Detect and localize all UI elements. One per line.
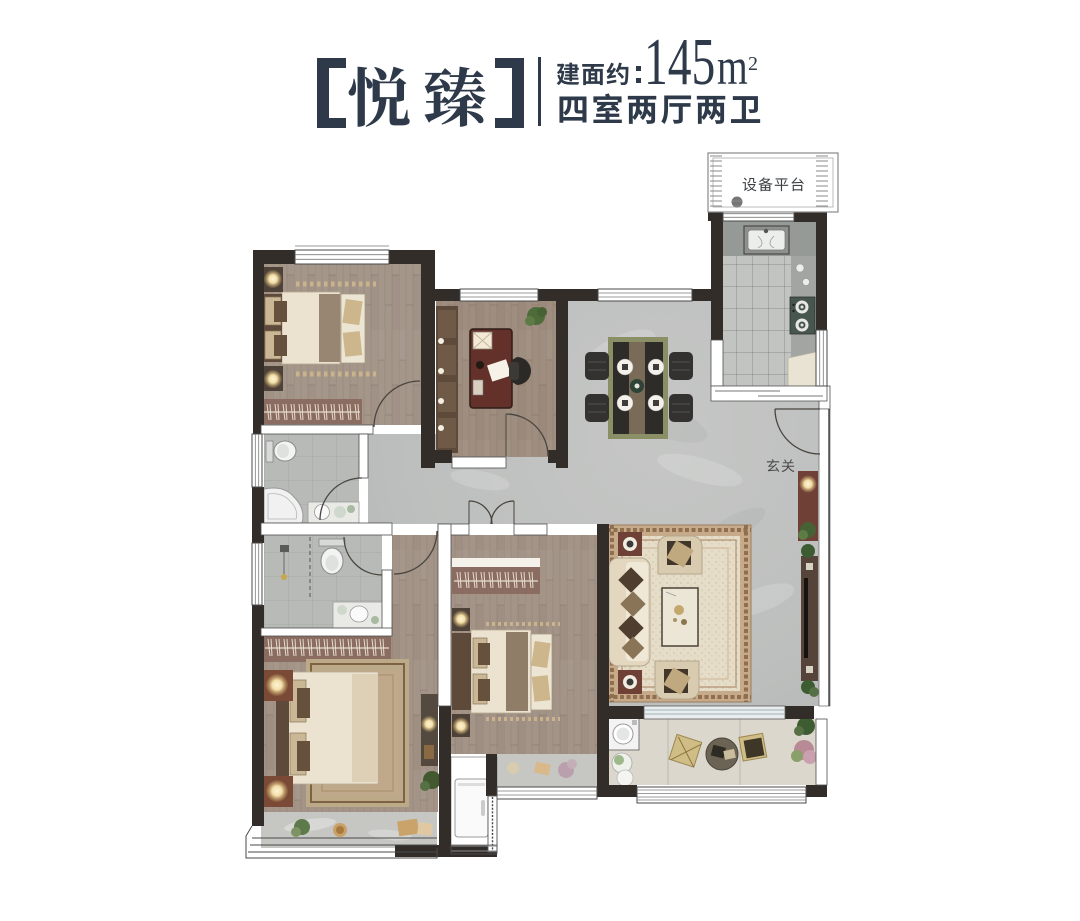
svg-text:2: 2 (748, 53, 758, 75)
svg-text:m: m (717, 38, 748, 95)
svg-text:145: 145 (644, 24, 715, 99)
